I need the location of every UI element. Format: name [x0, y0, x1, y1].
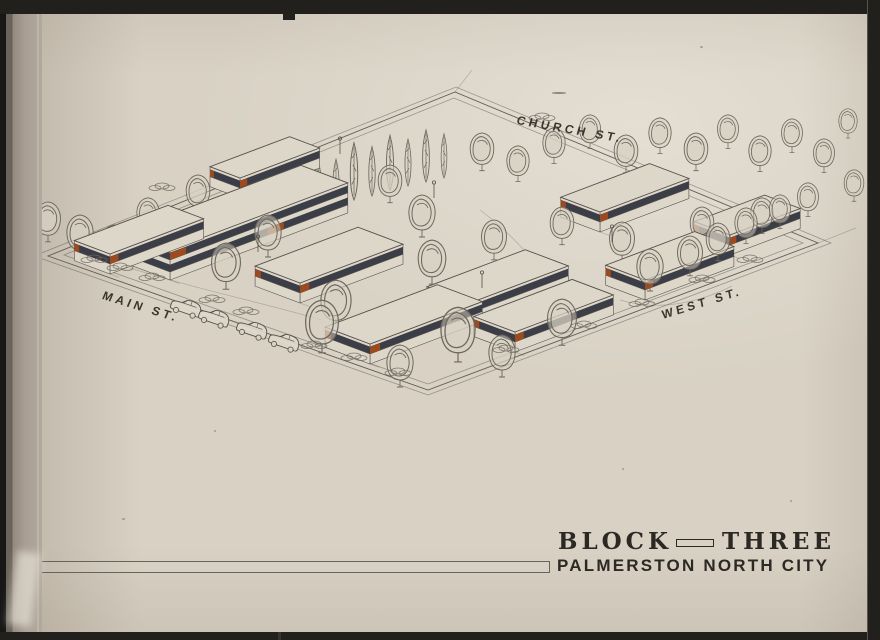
sheet-subtitle: PALMERSTON NORTH CITY	[557, 556, 829, 576]
scan-border-top	[0, 0, 880, 14]
tree	[409, 195, 435, 237]
tree	[418, 240, 446, 284]
shrub	[737, 255, 763, 263]
poplar-tree	[441, 134, 447, 178]
sheet-title-three: THREE	[722, 528, 835, 555]
poplar-tree	[405, 139, 411, 186]
parked-car	[197, 305, 231, 330]
shrub	[233, 307, 259, 315]
tree	[255, 215, 281, 257]
poplar-tree	[423, 130, 430, 182]
dust-speck	[700, 46, 703, 48]
binding-crease	[37, 0, 39, 640]
tree	[441, 307, 475, 362]
tree	[797, 183, 818, 217]
tree	[507, 146, 529, 182]
dust-speck	[622, 468, 624, 470]
shrub	[149, 183, 175, 191]
dust-speck	[122, 518, 125, 520]
tree	[212, 243, 241, 289]
title-rule-box	[30, 561, 550, 573]
tree	[550, 207, 574, 245]
cars-layer	[169, 295, 301, 354]
site-plan-root	[34, 70, 864, 395]
sheet-title-block: BLOCK	[558, 528, 672, 555]
tree	[844, 170, 864, 202]
scan-background: CHURCH ST. MAIN ST. WEST ST. BLOCK THREE…	[0, 0, 880, 640]
sheet-title: BLOCK THREE	[558, 528, 835, 555]
poplar-tree	[369, 147, 375, 196]
scan-border-bottom	[0, 632, 880, 640]
tree	[378, 165, 402, 203]
scan-border-notch	[283, 14, 295, 20]
tree	[684, 133, 708, 171]
lamp-post	[338, 137, 341, 154]
tree	[717, 115, 738, 149]
tree	[781, 119, 802, 153]
shrub	[199, 295, 225, 303]
poplar-tree	[350, 143, 357, 200]
tree	[649, 118, 671, 154]
tree	[749, 136, 771, 172]
tree	[387, 345, 413, 387]
tree	[470, 133, 494, 171]
scanned-drawing-page: { "labels": { "church": "CHURCH ST.", "m…	[0, 0, 880, 640]
tree	[482, 220, 507, 260]
title-dash	[676, 539, 714, 547]
lamp-post	[432, 181, 435, 198]
dust-speck	[790, 500, 792, 502]
book-binding-edge	[0, 0, 42, 640]
parked-car	[235, 317, 269, 342]
binding-crease	[12, 0, 13, 640]
scratch-mark	[552, 92, 566, 94]
tree	[839, 109, 857, 138]
tree	[813, 139, 834, 173]
scan-border-right	[867, 0, 880, 640]
dust-speck	[214, 430, 216, 432]
scan-border-seam	[278, 632, 281, 640]
